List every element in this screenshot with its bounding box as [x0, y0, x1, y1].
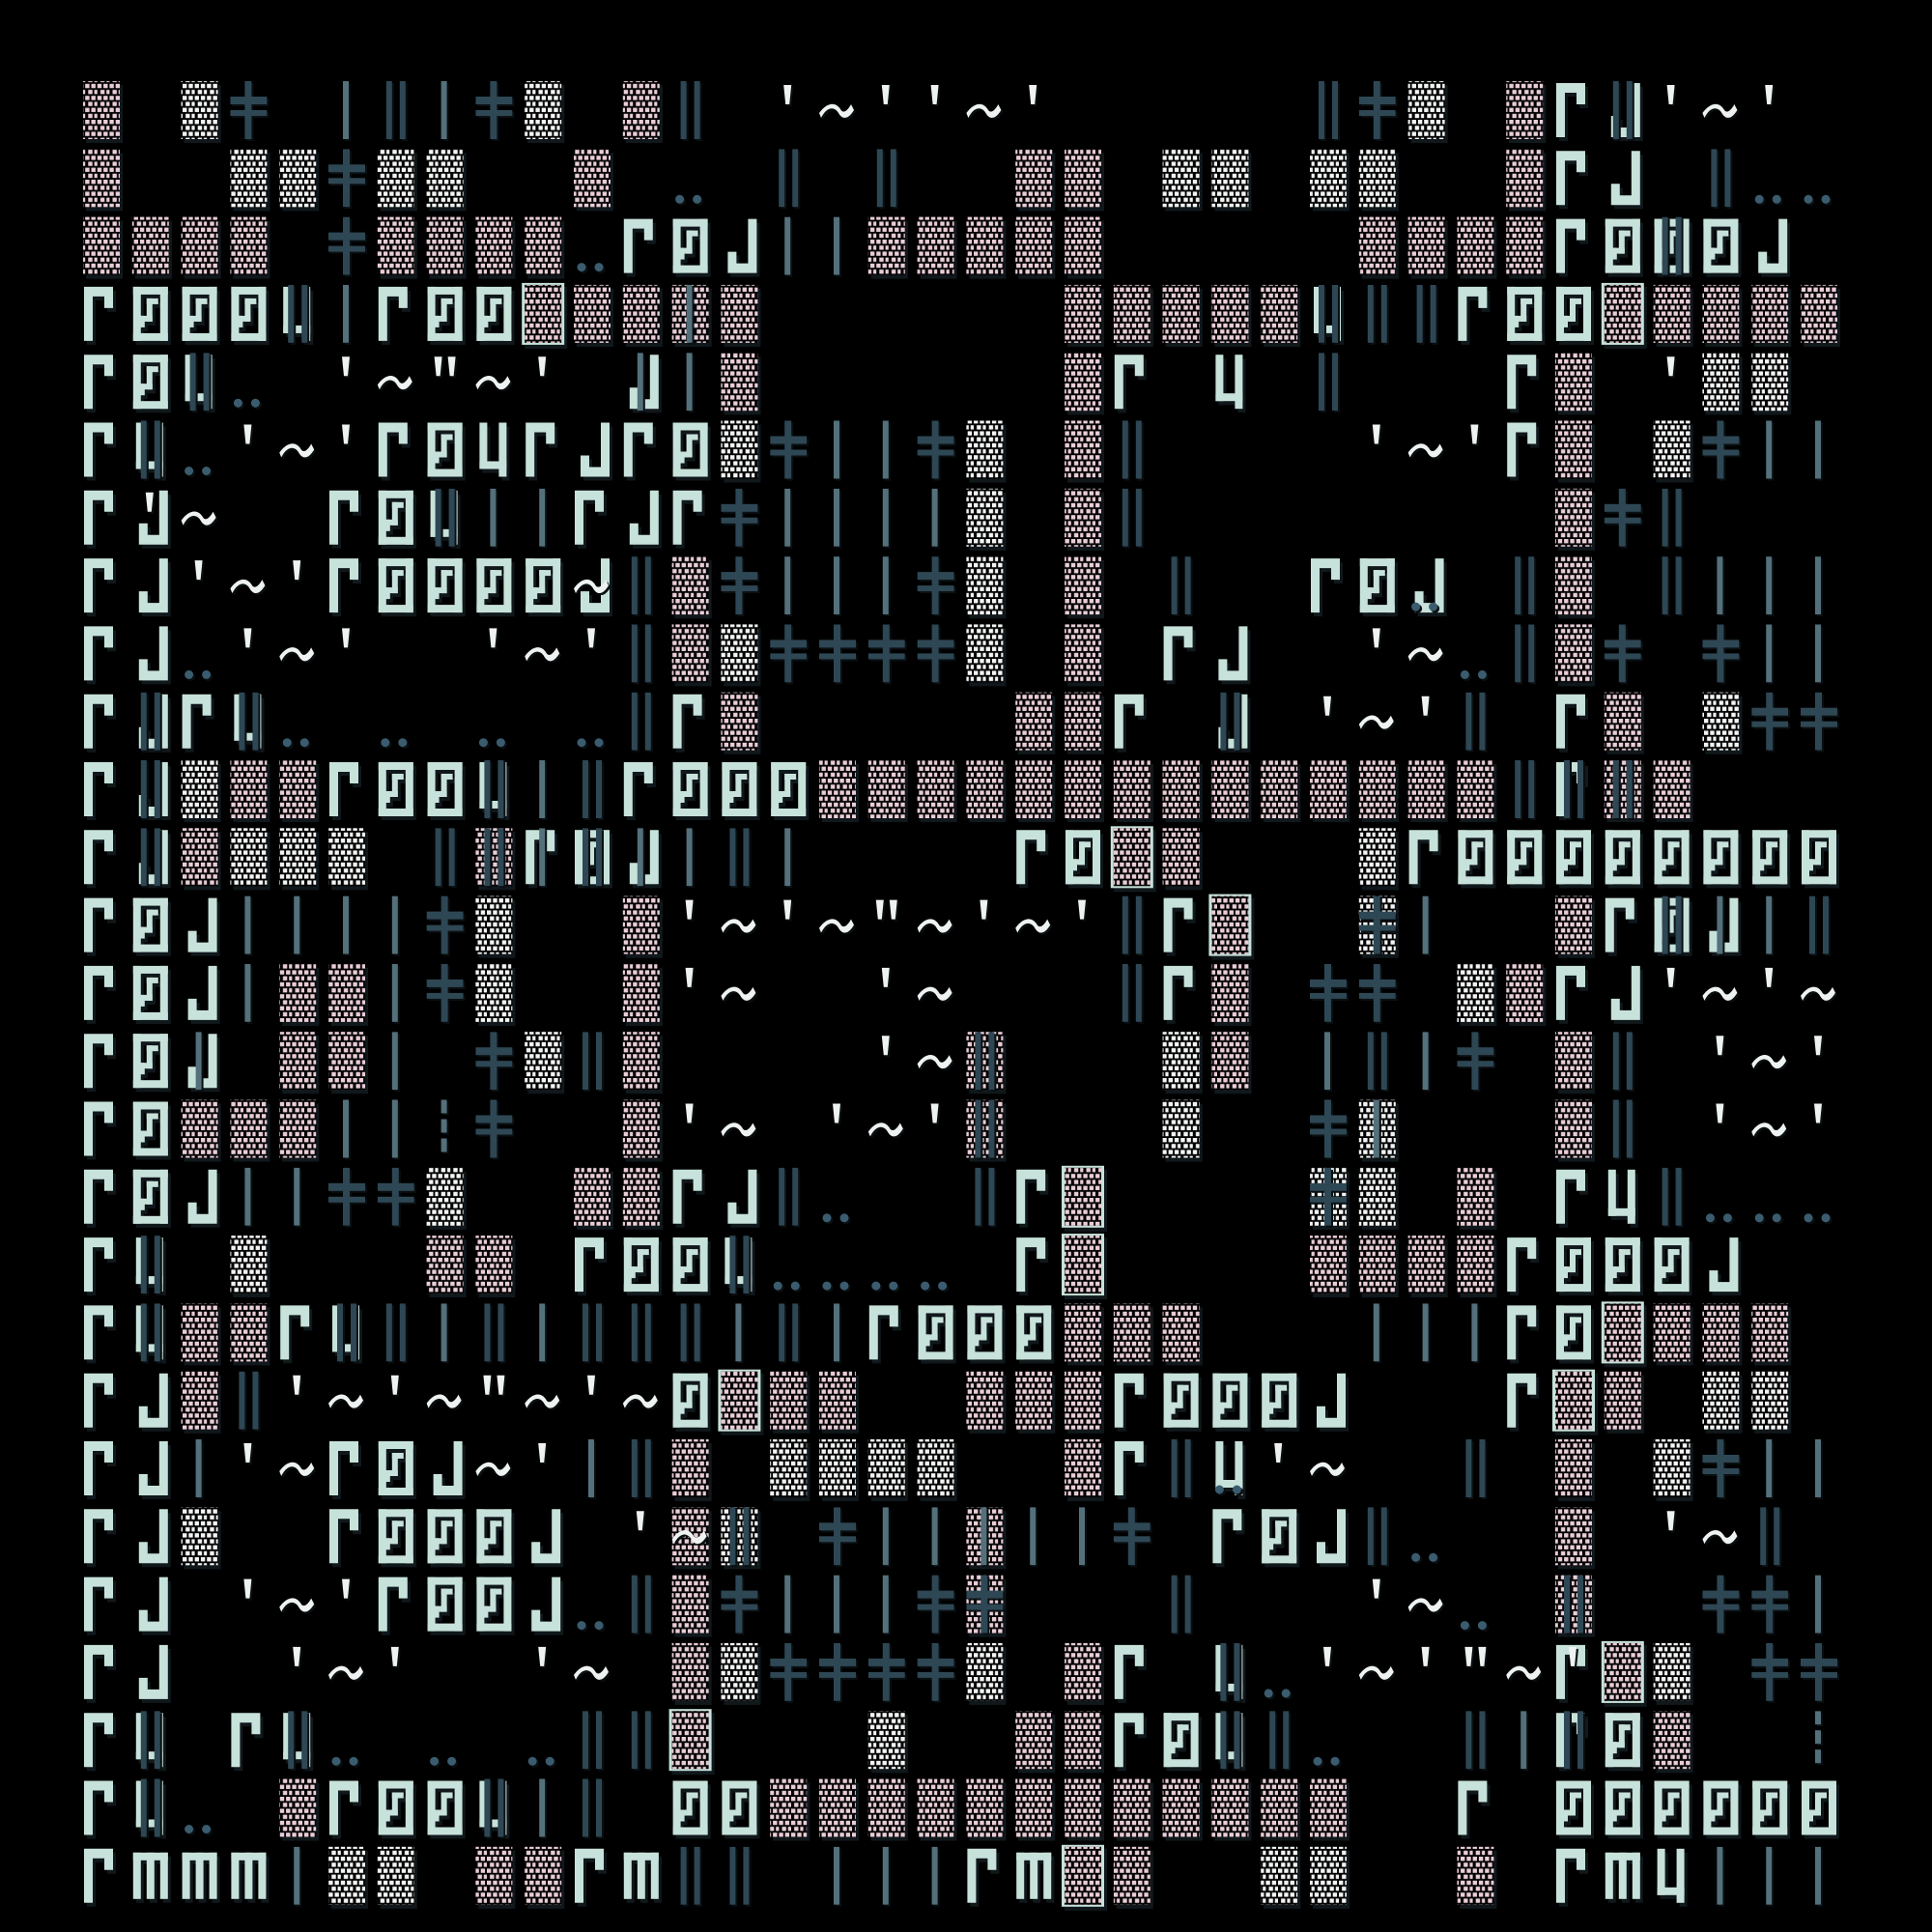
single-bar	[392, 964, 398, 1022]
corner-gamma	[84, 1781, 113, 1835]
tilde	[868, 1122, 903, 1136]
u-cup	[1658, 1849, 1685, 1903]
double-bar	[1368, 1032, 1387, 1090]
apostrophe	[342, 628, 350, 647]
square-spiral	[771, 762, 806, 816]
tilde	[279, 647, 314, 661]
square-spiral	[476, 1509, 511, 1563]
single-bar	[1030, 1507, 1036, 1565]
square-spiral	[1655, 1781, 1690, 1835]
corner-gamma	[329, 1781, 358, 1835]
double-bar	[1368, 1507, 1387, 1565]
corner-gamma	[575, 1849, 604, 1903]
dashed-bar	[1815, 1711, 1821, 1763]
single-bar	[638, 828, 643, 886]
dot-pair	[430, 1757, 456, 1766]
cross	[868, 1643, 905, 1701]
square-spiral	[1655, 830, 1690, 884]
corner-gamma	[526, 423, 554, 477]
cross	[1801, 1643, 1837, 1701]
double-bar	[1122, 964, 1142, 1022]
hook	[1758, 219, 1787, 273]
double-bar	[1319, 353, 1338, 411]
square-spiral	[428, 1577, 463, 1632]
double-bar	[1515, 556, 1534, 614]
m-arches	[231, 1853, 266, 1899]
cross	[918, 1576, 954, 1634]
apostrophe	[1422, 696, 1430, 716]
corner-gamma	[84, 1577, 113, 1632]
double-bar	[681, 1847, 700, 1905]
tilde	[427, 1394, 462, 1407]
corner-gamma	[1164, 626, 1193, 680]
cross	[1605, 489, 1641, 547]
double-bar	[779, 1168, 798, 1226]
u-cup	[1215, 355, 1242, 409]
cross	[1310, 1100, 1347, 1158]
single-bar	[1815, 1576, 1821, 1634]
hook	[139, 1577, 168, 1632]
double-bar	[1760, 1507, 1779, 1565]
double-bar	[632, 1576, 651, 1634]
double-bar	[190, 353, 210, 411]
square-spiral	[379, 558, 413, 612]
corner-gamma	[1507, 423, 1536, 477]
square-spiral	[1605, 1781, 1640, 1835]
double-bar	[1662, 556, 1682, 614]
corner-gamma	[1115, 1713, 1144, 1767]
single-bar	[784, 1576, 790, 1634]
corner-gamma	[1507, 1237, 1536, 1292]
corner-gamma	[673, 1170, 702, 1224]
tilde	[1506, 1666, 1541, 1680]
corner-gamma	[673, 491, 702, 545]
corner-gamma	[379, 287, 408, 341]
m-arches	[624, 1853, 659, 1899]
single-bar	[834, 421, 839, 479]
corner-gamma	[84, 695, 113, 749]
double-bar	[141, 1711, 160, 1769]
square-spiral	[133, 1170, 168, 1224]
dot-pair	[1804, 195, 1831, 204]
square-spiral	[673, 1781, 708, 1835]
single-bar	[343, 1100, 349, 1158]
cross	[378, 1168, 414, 1226]
apostrophe	[1667, 1511, 1675, 1530]
cross	[427, 896, 464, 954]
single-bar	[834, 1576, 839, 1634]
square-spiral	[133, 1102, 168, 1156]
cross	[427, 964, 464, 1022]
apostrophe	[783, 85, 791, 104]
corner-gamma	[1605, 898, 1634, 952]
single-bar	[1815, 1439, 1821, 1497]
tilde	[1359, 715, 1394, 728]
apostrophe	[1814, 1036, 1822, 1055]
single-bar	[1766, 624, 1772, 682]
square-spiral	[1556, 1237, 1591, 1292]
dot-pair	[381, 738, 407, 747]
hook	[139, 1645, 168, 1699]
single-bar	[1423, 896, 1429, 954]
cross	[1457, 1032, 1493, 1090]
corner-gamma	[329, 558, 358, 612]
double-bar	[141, 1236, 160, 1293]
double-bar	[1220, 1643, 1239, 1701]
corner-gamma	[84, 966, 113, 1020]
cross	[918, 1643, 954, 1701]
corner-gamma	[673, 695, 702, 749]
double-bar	[582, 1032, 602, 1090]
tilde	[1751, 1122, 1786, 1136]
cross	[819, 624, 856, 682]
cross	[770, 421, 807, 479]
apostrophe	[538, 1647, 546, 1666]
single-bar	[883, 1576, 889, 1634]
apostrophe	[342, 425, 350, 444]
square-spiral	[1507, 830, 1542, 884]
double-bar	[1368, 285, 1387, 343]
single-bar	[244, 1168, 250, 1226]
corner-gamma	[183, 695, 212, 749]
dot-pair	[1461, 670, 1487, 679]
apostrophe	[882, 85, 890, 104]
cross	[770, 624, 807, 682]
single-bar	[1717, 1847, 1722, 1905]
dot-pair	[185, 1825, 211, 1833]
double-bar	[729, 828, 749, 886]
square-spiral	[428, 287, 463, 341]
double-bar	[1515, 624, 1534, 682]
double-bar	[1122, 896, 1142, 954]
tilde	[525, 647, 559, 661]
hook	[1218, 626, 1247, 680]
dot-pair	[528, 1757, 554, 1766]
corner-gamma	[84, 1374, 113, 1428]
tilde	[378, 376, 412, 389]
square-spiral	[379, 1781, 413, 1835]
corner-gamma	[84, 1305, 113, 1359]
cross	[918, 624, 954, 682]
cross	[868, 624, 905, 682]
hook	[1317, 1509, 1346, 1563]
single-bar	[834, 556, 839, 614]
tilde	[230, 580, 265, 593]
single-bar	[1423, 1303, 1429, 1361]
square-spiral	[1556, 830, 1591, 884]
single-bar	[343, 285, 349, 343]
dot-pair	[871, 1282, 897, 1291]
corner-gamma	[84, 1034, 113, 1088]
apostrophe	[1667, 968, 1675, 987]
single-bar	[687, 285, 693, 343]
tilde	[918, 987, 952, 1001]
double-bar	[681, 1303, 700, 1361]
double-bar	[1465, 1439, 1485, 1497]
corner-gamma	[624, 423, 653, 477]
double-bar	[141, 1779, 160, 1837]
corner-gamma	[1164, 898, 1193, 952]
double-bar	[141, 1303, 160, 1361]
corner-gamma	[84, 626, 113, 680]
hook	[434, 1441, 463, 1495]
single-bar	[294, 1847, 299, 1905]
cross	[475, 1032, 512, 1090]
glyph-layer-base	[83, 81, 1837, 1907]
square-spiral	[1556, 287, 1591, 341]
cross	[819, 1643, 856, 1701]
apostrophe	[195, 560, 203, 580]
apostrophe	[931, 85, 939, 104]
apostrophe	[686, 1104, 694, 1123]
square-spiral	[1655, 898, 1690, 952]
single-bar	[784, 828, 790, 886]
square-spiral	[1655, 219, 1690, 273]
tilde	[328, 1394, 363, 1407]
dot-pair	[283, 738, 309, 747]
double-bar	[779, 1303, 798, 1361]
corner-gamma	[1507, 355, 1536, 409]
corner-gamma	[1311, 558, 1340, 612]
corner-gamma	[1115, 1645, 1144, 1699]
dot-pair	[1461, 1621, 1487, 1630]
apostrophe	[243, 1443, 251, 1463]
hook	[139, 1441, 168, 1495]
single-bar	[539, 1303, 545, 1361]
single-bar	[1815, 421, 1821, 479]
apostrophe	[391, 1647, 399, 1666]
dot-pair	[1755, 1213, 1781, 1222]
tilde	[1702, 1530, 1737, 1544]
single-bar	[441, 81, 447, 139]
square-spiral	[575, 830, 610, 884]
single-bar	[834, 1847, 839, 1905]
square-spiral	[428, 1509, 463, 1563]
corner-gamma	[84, 762, 113, 816]
apostrophe	[686, 968, 694, 987]
square-spiral	[1262, 1374, 1296, 1428]
single-bar	[244, 896, 250, 954]
cross	[1751, 1643, 1788, 1701]
single-bar	[1766, 556, 1772, 614]
single-bar	[1815, 556, 1821, 614]
dot-pair	[234, 399, 260, 408]
single-bar	[392, 1100, 398, 1158]
square-spiral	[1016, 1305, 1051, 1359]
square-spiral	[1065, 830, 1100, 884]
tilde	[623, 1394, 658, 1407]
hook	[1709, 898, 1738, 952]
apostrophe	[1470, 425, 1478, 444]
single-bar	[1423, 1032, 1429, 1090]
tilde	[279, 1463, 314, 1476]
single-bar	[392, 1032, 398, 1090]
cross	[328, 149, 365, 207]
hook	[139, 558, 168, 612]
corner-gamma	[84, 491, 113, 545]
square-spiral	[379, 1441, 413, 1495]
apostrophe	[1716, 1036, 1723, 1055]
square-spiral	[1507, 287, 1542, 341]
square-spiral	[476, 558, 511, 612]
single-bar	[1324, 1032, 1330, 1090]
cross	[1751, 693, 1788, 751]
apostrophe	[538, 356, 546, 376]
double-bar	[1465, 1711, 1485, 1769]
single-bar	[1079, 1507, 1085, 1565]
double-bar	[1465, 693, 1485, 751]
corner-gamma	[231, 1713, 260, 1767]
dot-pair	[921, 1282, 947, 1291]
tilde	[328, 1666, 363, 1680]
apostrophe	[1029, 85, 1037, 104]
apostrophe	[538, 1443, 546, 1463]
dot-pair	[332, 1757, 358, 1766]
double-bar	[1662, 1168, 1682, 1226]
double-bar	[1662, 489, 1682, 547]
square-spiral	[1802, 830, 1836, 884]
m-arches	[183, 1853, 217, 1899]
double-bar	[337, 1303, 356, 1361]
double-bar	[288, 285, 307, 343]
corner-gamma	[967, 1849, 996, 1903]
dot-pair	[578, 1621, 604, 1630]
single-bar	[784, 489, 790, 547]
double-bar	[484, 760, 503, 818]
cross	[1605, 624, 1641, 682]
square-spiral	[919, 1305, 953, 1359]
single-bar	[294, 1168, 299, 1226]
corner-gamma	[1115, 695, 1144, 749]
corner-gamma	[84, 1713, 113, 1767]
square-spiral	[673, 762, 708, 816]
square-spiral	[133, 966, 168, 1020]
dot-pair	[578, 263, 604, 271]
hook	[1709, 1237, 1738, 1292]
single-bar	[441, 1303, 447, 1361]
square-spiral	[673, 423, 708, 477]
double-bar	[582, 1711, 602, 1769]
double-quote	[483, 1376, 504, 1395]
square-spiral	[428, 762, 463, 816]
double-bar	[632, 624, 651, 682]
square-spiral	[1556, 1781, 1591, 1835]
hook	[727, 219, 756, 273]
single-bar	[392, 896, 398, 954]
double-bar	[141, 421, 160, 479]
corner-gamma	[1016, 1170, 1045, 1224]
dot-pair	[185, 467, 211, 475]
apostrophe	[1078, 900, 1086, 920]
cross	[1801, 693, 1837, 751]
single-bar	[539, 489, 545, 547]
corner-gamma	[1556, 1170, 1585, 1224]
double-bar	[632, 1439, 651, 1497]
single-bar	[638, 353, 643, 411]
hook	[630, 491, 659, 545]
double-bar	[1613, 1100, 1633, 1158]
double-bar	[681, 81, 700, 139]
square-spiral	[1164, 1713, 1199, 1767]
apostrophe	[833, 1104, 840, 1123]
tilde	[1408, 1598, 1443, 1611]
tilde	[819, 919, 854, 932]
apostrophe	[342, 1579, 350, 1599]
square-spiral	[379, 1509, 413, 1563]
square-spiral	[1655, 1237, 1690, 1292]
apostrophe	[293, 1376, 300, 1395]
corner-gamma	[84, 1849, 113, 1903]
square-spiral	[1605, 830, 1640, 884]
apostrophe	[980, 900, 987, 920]
square-spiral	[133, 287, 168, 341]
square-spiral	[1262, 1509, 1296, 1563]
apostrophe	[243, 425, 251, 444]
apostrophe	[587, 1376, 595, 1395]
hook	[188, 898, 217, 952]
square-spiral	[1703, 1781, 1738, 1835]
single-bar	[343, 81, 349, 139]
square-spiral	[1802, 1781, 1836, 1835]
single-bar	[539, 828, 545, 886]
apostrophe	[1373, 1579, 1380, 1599]
corner-gamma	[1115, 355, 1144, 409]
double-bar	[1319, 81, 1338, 139]
single-bar	[1374, 1303, 1379, 1361]
dashed-bar	[441, 1100, 447, 1152]
square-spiral	[428, 423, 463, 477]
dot-pair	[1264, 1689, 1291, 1697]
square-spiral	[428, 1781, 463, 1835]
corner-gamma	[1115, 1441, 1144, 1495]
square-spiral	[1360, 558, 1395, 612]
art-canvas	[0, 0, 1932, 1932]
corner-gamma	[1556, 1849, 1585, 1903]
apostrophe	[882, 968, 890, 987]
corner-gamma	[84, 558, 113, 612]
double-bar	[1711, 149, 1730, 207]
apostrophe	[1373, 425, 1380, 444]
corner-gamma	[329, 1509, 358, 1563]
square-spiral	[1556, 1305, 1591, 1359]
single-bar	[834, 1303, 839, 1361]
dot-pair	[479, 738, 505, 747]
dot-pair	[1755, 195, 1781, 204]
apostrophe	[783, 900, 791, 920]
u-cup	[479, 423, 506, 477]
double-bar	[386, 81, 406, 139]
apostrophe	[293, 560, 300, 580]
square-spiral	[624, 1237, 659, 1292]
corner-gamma	[84, 423, 113, 477]
single-bar	[883, 421, 889, 479]
square-spiral	[1752, 1781, 1787, 1835]
corner-gamma	[84, 1509, 113, 1563]
generative-ascii-artwork	[0, 0, 1932, 1932]
double-bar	[779, 149, 798, 207]
cross	[328, 217, 365, 275]
double-bar	[975, 1168, 994, 1226]
u-cup	[1608, 1170, 1635, 1224]
corner-gamma	[1016, 830, 1045, 884]
hook	[630, 830, 659, 884]
single-bar	[244, 964, 250, 1022]
square-spiral	[673, 1374, 708, 1428]
hook	[727, 1170, 756, 1224]
square-spiral	[722, 762, 756, 816]
square-spiral	[231, 287, 266, 341]
corner-gamma	[84, 1237, 113, 1292]
